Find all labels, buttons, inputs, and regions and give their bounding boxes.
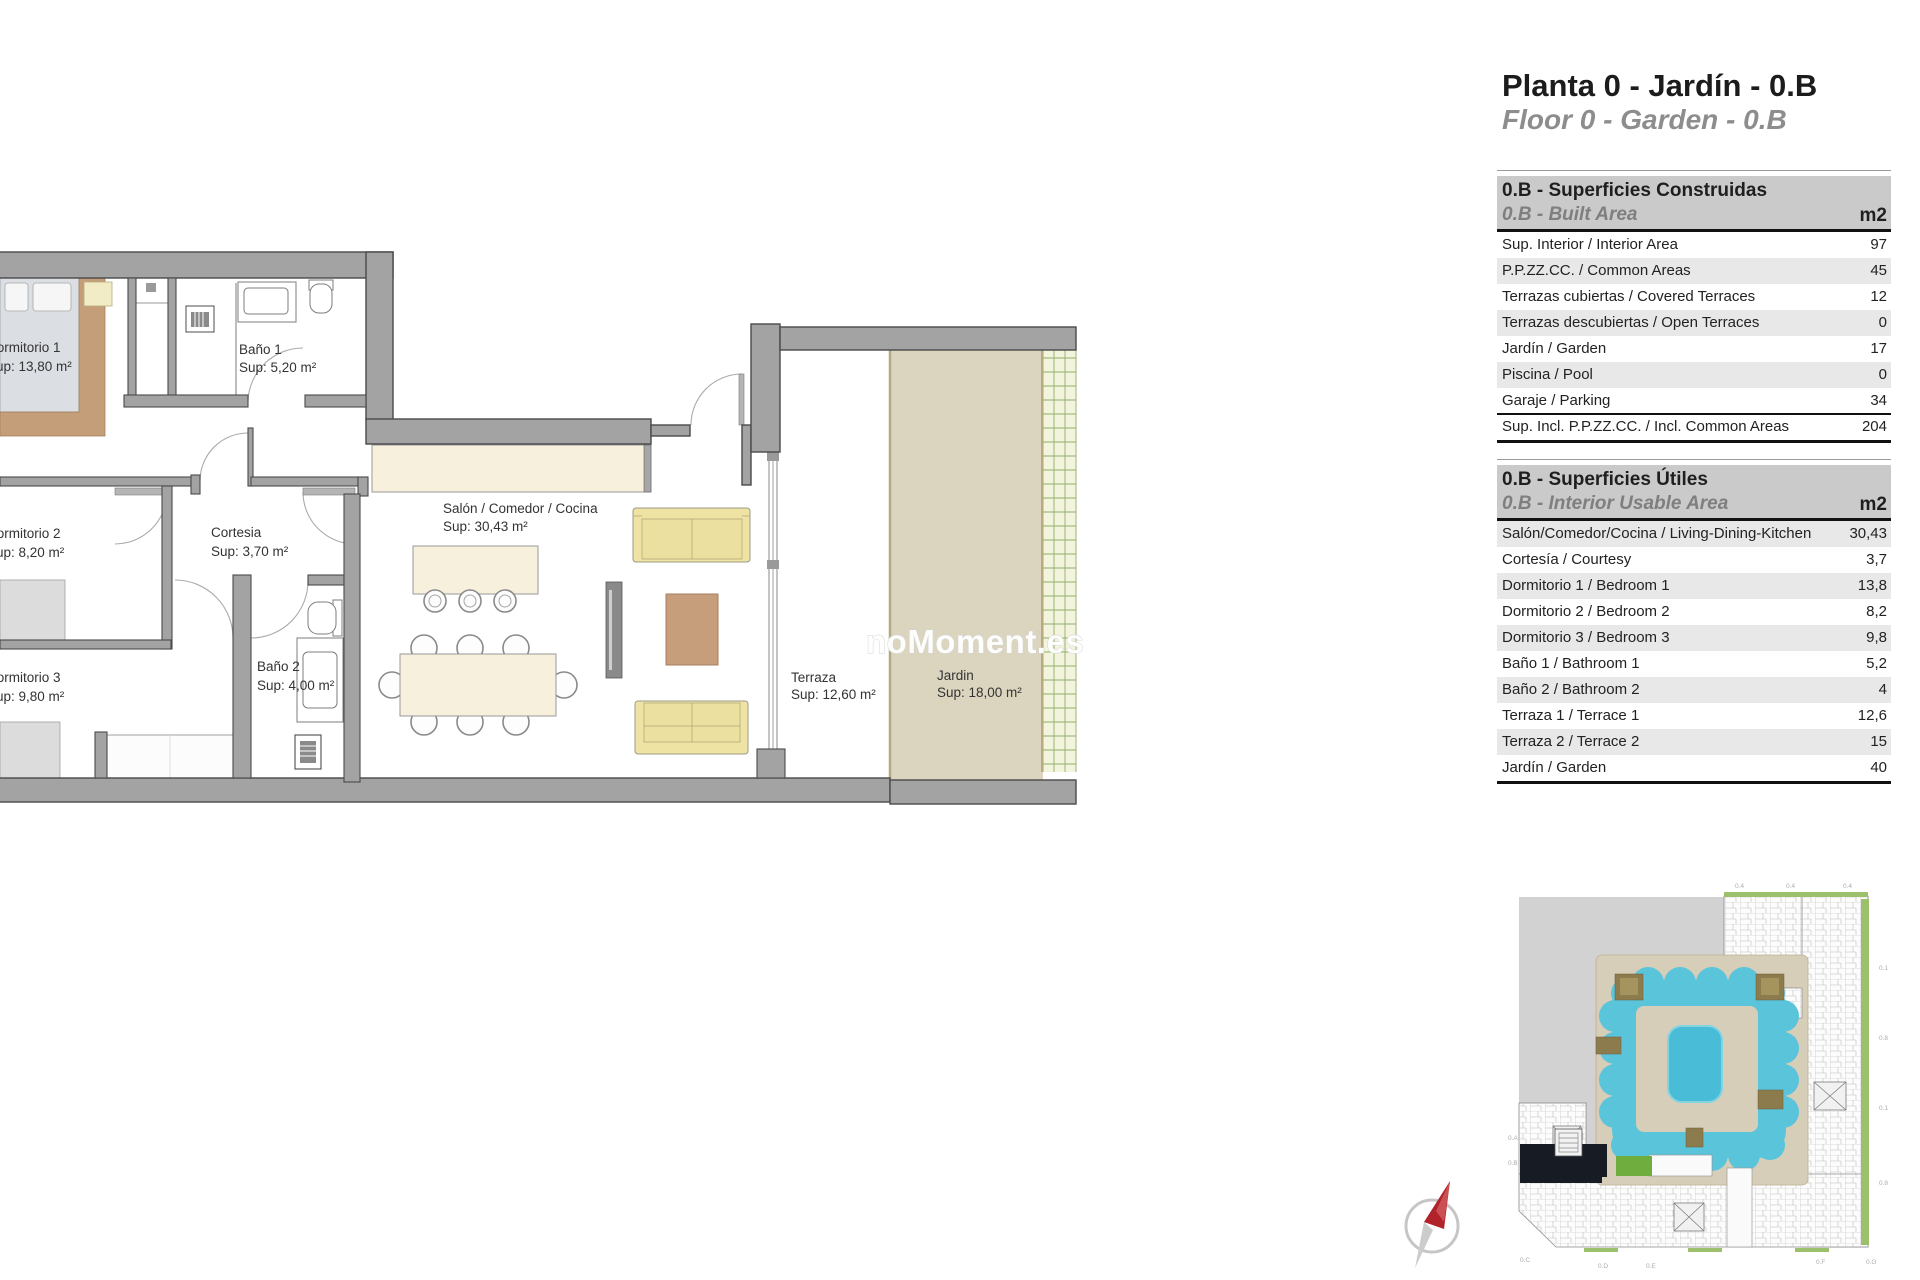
svg-text:Jardin: Jardin xyxy=(937,668,974,683)
svg-text:Sup: 30,43 m²: Sup: 30,43 m² xyxy=(443,519,528,534)
svg-text:0.1: 0.1 xyxy=(1879,1105,1888,1112)
svg-text:0.4: 0.4 xyxy=(1843,883,1852,890)
svg-text:Sup: 5,20 m²: Sup: 5,20 m² xyxy=(239,360,317,375)
svg-text:Dormitorio 3: Dormitorio 3 xyxy=(0,670,61,685)
svg-text:Salón / Comedor / Cocina: Salón / Comedor / Cocina xyxy=(443,501,598,516)
svg-text:0.A: 0.A xyxy=(1508,1135,1518,1142)
svg-text:Cortesia: Cortesia xyxy=(211,525,262,540)
svg-text:Dormitorio 1: Dormitorio 1 xyxy=(0,340,61,355)
svg-text:Sup: 18,00 m²: Sup: 18,00 m² xyxy=(937,685,1022,700)
svg-text:Sup: 4,00 m²: Sup: 4,00 m² xyxy=(257,678,335,693)
svg-text:Baño 1: Baño 1 xyxy=(239,342,282,357)
svg-text:Sup: 12,60 m²: Sup: 12,60 m² xyxy=(791,687,876,702)
svg-text:0.4: 0.4 xyxy=(1786,883,1795,890)
svg-text:Sup: 8,20 m²: Sup: 8,20 m² xyxy=(0,545,65,560)
svg-text:Dormitorio 2: Dormitorio 2 xyxy=(0,526,61,541)
svg-text:0.G: 0.G xyxy=(1866,1259,1876,1266)
svg-text:Terraza: Terraza xyxy=(791,670,837,685)
svg-text:Sup: 13,80 m²: Sup: 13,80 m² xyxy=(0,359,72,374)
svg-text:0.F: 0.F xyxy=(1816,1259,1825,1266)
svg-text:0.C: 0.C xyxy=(1520,1257,1530,1264)
svg-text:Sup: 9,80 m²: Sup: 9,80 m² xyxy=(0,689,65,704)
svg-text:0.D: 0.D xyxy=(1598,1263,1608,1270)
svg-text:0.8: 0.8 xyxy=(1879,1180,1888,1187)
svg-text:Sup: 3,70 m²: Sup: 3,70 m² xyxy=(211,544,289,559)
svg-text:0.B: 0.B xyxy=(1508,1160,1518,1167)
svg-text:0.E: 0.E xyxy=(1646,1263,1656,1270)
svg-text:noMoment.es: noMoment.es xyxy=(866,623,1084,660)
svg-text:0.4: 0.4 xyxy=(1735,883,1744,890)
svg-text:Baño 2: Baño 2 xyxy=(257,659,300,674)
svg-text:0.1: 0.1 xyxy=(1879,965,1888,972)
svg-text:0.8: 0.8 xyxy=(1879,1035,1888,1042)
